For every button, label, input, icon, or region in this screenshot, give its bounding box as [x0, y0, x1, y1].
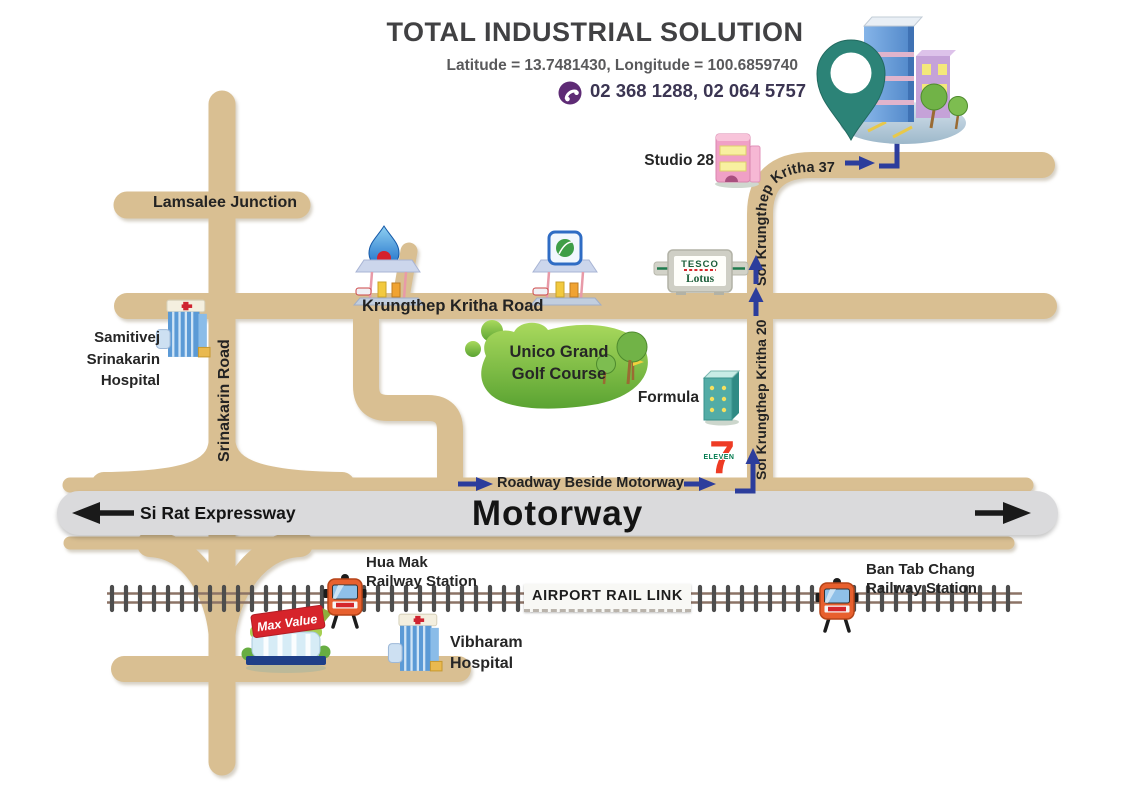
airport-rail-link-badge: AIRPORT RAIL LINK	[524, 584, 691, 612]
seven-eleven-icon: 7 ELEVEN	[703, 431, 734, 483]
road-soi-kk20-kk37	[760, 165, 1042, 492]
studio-28-building-icon	[715, 134, 760, 188]
lamsalee-junction-label: Lamsalee Junction	[150, 194, 300, 212]
page-title: TOTAL INDUSTRIAL SOLUTION	[300, 17, 890, 48]
srinakarin-road-label: Srinakarin Road	[216, 339, 233, 462]
map-canvas: Srinakarin Road Soi Krungthep Kritha 20 …	[0, 0, 1129, 800]
lotus-label: Lotus	[686, 273, 715, 285]
roadway-beside-motorway-label: Roadway Beside Motorway	[497, 475, 684, 491]
ban-tab-chang-train-icon	[816, 578, 859, 631]
hua-mak-station-label: Hua Mak Railway Station	[366, 553, 477, 591]
tesco-label: TESCO	[681, 259, 719, 270]
tree-icon	[949, 97, 968, 116]
golf-course-label: Unico Grand Golf Course	[476, 342, 642, 385]
eleven-word: ELEVEN	[703, 454, 734, 461]
tree-icon	[921, 84, 947, 110]
max-value-store-icon: Max Value	[242, 604, 335, 673]
vibharam-hospital-label: Vibharam Hospital	[450, 632, 523, 674]
krungthep-kritha-road-label: Krungthep Kritha Road	[362, 297, 544, 316]
ban-tab-chang-station-label: Ban Tab Chang Railway Station	[866, 560, 977, 598]
studio-28-label: Studio 28	[624, 152, 714, 170]
si-rat-expressway-label: Si Rat Expressway	[140, 503, 296, 524]
samitivej-hospital-label: Samitivej Srinakarin Hospital	[62, 327, 160, 392]
tesco-lotus-icon: TESCO Lotus	[654, 250, 748, 295]
map-graphic: Srinakarin Road Soi Krungthep Kritha 20 …	[0, 0, 1129, 800]
road-s-curve	[366, 316, 450, 484]
viber-phone-icon	[559, 82, 582, 105]
formula-label: Formula	[609, 389, 699, 407]
vibharam-hospital-icon	[388, 614, 442, 671]
motorway-label: Motorway	[455, 494, 660, 534]
phone-numbers: 02 368 1288, 02 064 5757	[590, 80, 806, 102]
coordinates-text: Latitude = 13.7481430, Longitude = 100.6…	[400, 57, 798, 75]
formula-building-icon	[704, 371, 739, 426]
hua-mak-train-icon	[324, 574, 367, 627]
